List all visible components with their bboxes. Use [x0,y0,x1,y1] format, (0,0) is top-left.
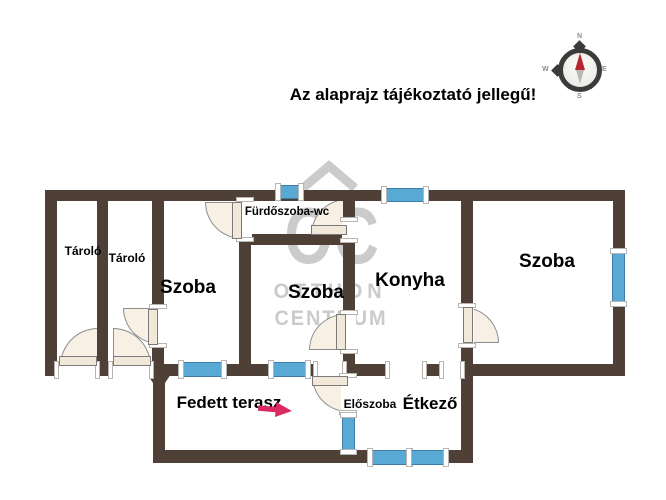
door-leaf-szoba-2 [336,314,346,350]
wall-outer-top [45,190,625,201]
door-leaf-tarolo-1 [59,356,97,366]
floor-plan-page: Az alaprajz tájékoztató jellegű! N E S W… [0,0,666,500]
compass-needle-north [575,53,585,70]
compass-label-w: W [542,66,549,73]
window-terasz-szoba2 [273,362,306,377]
compass-needle-south [576,70,584,84]
compass-label-e: E [602,66,607,73]
room-label-furdoszoba-wc: Fürdőszoba-wc [245,206,329,218]
window-bottom-etkezo-2 [411,450,444,465]
opening-etkezo-szoba3 [443,363,461,377]
room-label-konyha: Konyha [375,270,445,292]
room-label-tarolo-2: Tároló [109,251,146,265]
door-leaf-tarolo2-szoba1 [148,309,158,345]
door-leaf-furdoszoba [311,225,347,235]
window-right-szoba3 [612,253,625,302]
window-terasz-szoba1 [183,362,222,377]
room-label-tarolo-1: Tároló [65,244,102,258]
wall-furdoszoba-bottom [239,234,355,245]
wall-tarolo1-tarolo2 [97,196,108,366]
opening-konyha-etkezo [389,363,423,377]
wall-outer-left [45,190,57,376]
window-eloszoba-terasz [342,417,355,450]
compass-label-n: N [577,33,582,40]
room-label-eloszoba: Előszoba [344,397,397,411]
door-leaf-tarolo-2 [113,356,151,366]
compass-rose-icon: N E S W [540,32,620,117]
door-leaf-szoba-1 [232,202,242,239]
room-label-szoba-3: Szoba [519,251,575,273]
window-top-furdoszoba [280,185,299,199]
door-leaf-szoba-3 [463,307,473,343]
window-bottom-etkezo-1 [372,450,408,465]
compass-label-s: S [577,93,582,100]
room-label-szoba-2: Szoba [288,282,344,304]
watermark-roof-icon [299,160,359,192]
window-top-konyha [386,188,424,202]
disclaimer-text: Az alaprajz tájékoztató jellegű! [290,85,537,105]
room-label-szoba-1: Szoba [160,277,216,299]
room-label-etkezo: Étkező [403,394,458,414]
door-leaf-eloszoba [312,376,348,386]
